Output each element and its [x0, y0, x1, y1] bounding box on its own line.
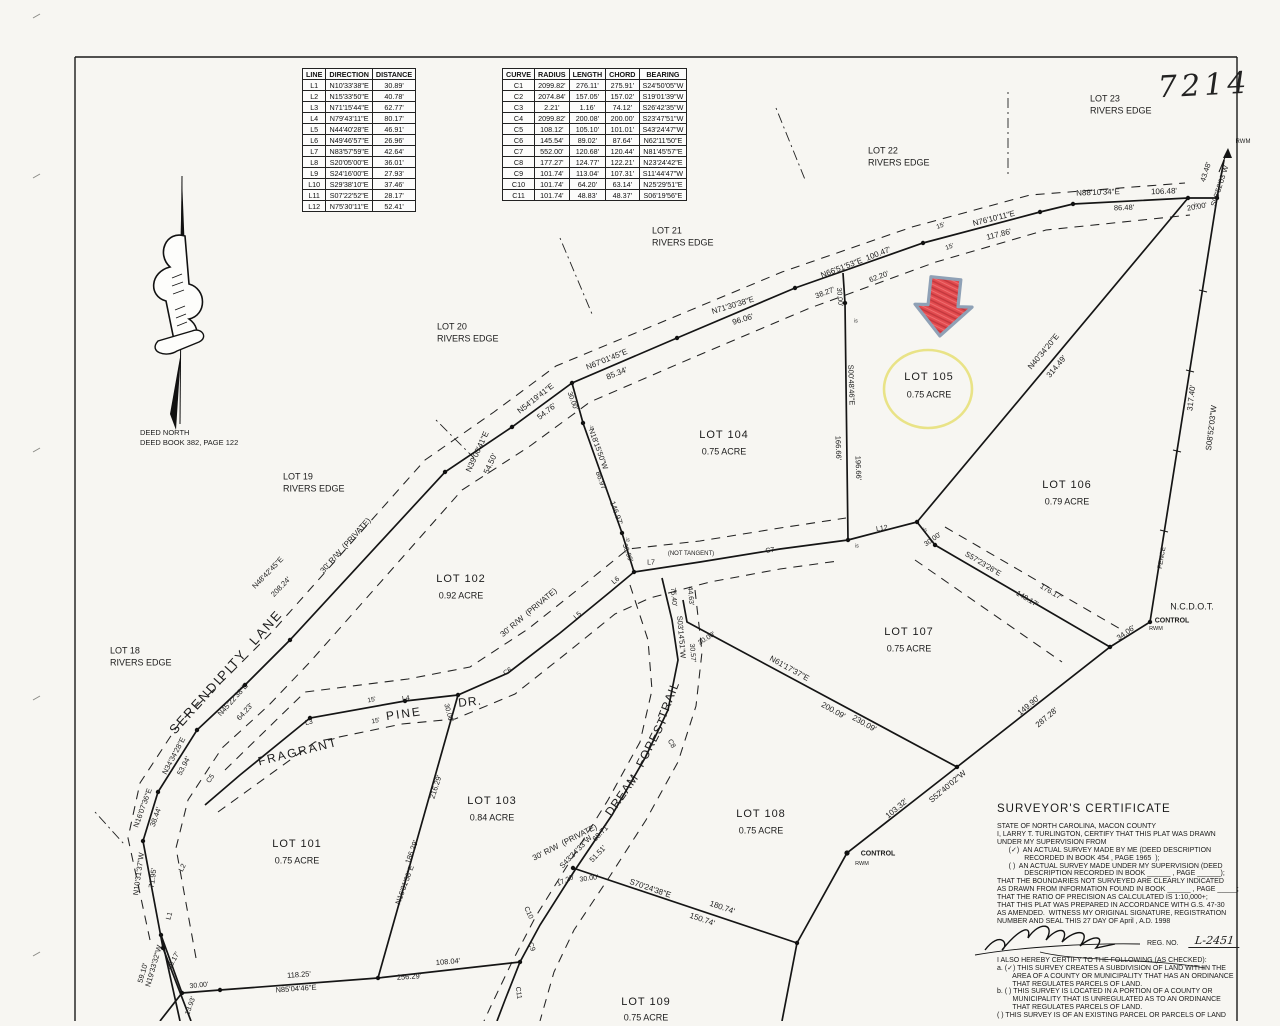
table-cell: N81'45'57"E	[639, 146, 687, 157]
table-cell: N71'15'44"E	[326, 102, 373, 113]
table-cell: 275.91'	[606, 80, 639, 91]
table-cell: S11'44'47"W	[639, 168, 687, 179]
dim-label: 118.25'	[287, 970, 311, 980]
certificate-line: b. ( ) THIS SURVEY IS LOCATED IN A PORTI…	[997, 988, 1280, 996]
table-cell: S20'05'00"E	[326, 157, 373, 168]
certificate-line: a. (✓) THIS SURVEY CREATES A SUBDIVISION…	[997, 965, 1280, 973]
line-table: LINEDIRECTIONDISTANCEL1N10'33'38"E30.89'…	[302, 68, 416, 212]
table-cell: 276.11'	[569, 80, 606, 91]
certificate-title: SURVEYOR'S CERTIFICATE	[997, 803, 1280, 815]
table-cell: L10	[303, 179, 326, 190]
table-cell: 89.02'	[569, 135, 606, 146]
lot-22-sub: RIVERS EDGE	[868, 158, 930, 167]
lot-23-label: LOT 23	[1090, 94, 1120, 103]
dim-label: 44.63'	[686, 586, 695, 605]
table-row: L12N75'30'11"E52.41'	[303, 201, 416, 212]
dim-label: 86.48'	[1114, 204, 1134, 213]
table-cell: 105.10'	[569, 124, 606, 135]
table-cell: 62.77'	[372, 102, 415, 113]
table-cell: 46.91'	[372, 124, 415, 135]
lot-105-acre: 0.75 ACRE	[907, 390, 952, 399]
table-row: L3N71'15'44"E62.77'	[303, 102, 416, 113]
table-cell: C9	[503, 168, 535, 179]
table-cell: N83'57'59"E	[326, 146, 373, 157]
certificate-line: THAT REGULATES PARCELS OF LAND.	[997, 1004, 1280, 1012]
stake-label: is	[626, 538, 630, 543]
lot-105-label: LOT 105	[904, 372, 954, 384]
ncdot-label: N.C.D.O.T.	[1170, 602, 1214, 611]
lot-108-acre: 0.75 ACRE	[739, 826, 784, 835]
table-header: RADIUS	[535, 69, 570, 80]
table-row: C32.21'1.16'74.12'S26'42'35"W	[503, 102, 687, 113]
table-row: L8S20'05'00"E36.01'	[303, 157, 416, 168]
dim-label: 30.00'	[835, 287, 844, 306]
table-cell: 157.02'	[606, 91, 639, 102]
table-cell: C8	[503, 157, 535, 168]
table-cell: 552.00'	[535, 146, 570, 157]
curve-table: CURVERADIUSLENGTHCHORDBEARINGC12099.82'2…	[502, 68, 687, 201]
table-cell: 2074.84'	[535, 91, 570, 102]
table-cell: 108.12'	[535, 124, 570, 135]
table-cell: 101.01'	[606, 124, 639, 135]
table-cell: S43'24'47"W	[639, 124, 687, 135]
table-cell: S26'42'35"W	[639, 102, 687, 113]
table-cell: 42.64'	[372, 146, 415, 157]
plat-map-canvas: 7214 LINEDIRECTIONDISTANCEL1N10'33'38"E3…	[0, 0, 1280, 1021]
table-cell: C2	[503, 91, 535, 102]
dim-label: 106.48'	[1151, 187, 1177, 196]
lot-19-sub: RIVERS EDGE	[283, 484, 345, 493]
stake-label: is	[1194, 203, 1198, 208]
table-cell: 28.17'	[372, 190, 415, 201]
table-cell: L3	[303, 102, 326, 113]
table-cell: 101.74'	[535, 190, 570, 201]
table-cell: 2.21'	[535, 102, 570, 113]
table-row: L5N44'40'28"E46.91'	[303, 124, 416, 135]
scan-edge-marks	[33, 14, 40, 956]
certificate-line: NUMBER AND SEAL THIS 27 DAY OF April , A…	[997, 918, 1280, 926]
table-header: BEARING	[639, 69, 687, 80]
lot-108-label: LOT 108	[736, 809, 786, 821]
table-cell: 177.27'	[535, 157, 570, 168]
table-cell: C3	[503, 102, 535, 113]
table-cell: N62'11'50"E	[639, 135, 687, 146]
deed-north-note: DEED NORTH	[140, 429, 189, 437]
table-cell: 48.37'	[606, 190, 639, 201]
table-row: C11101.74'48.83'48.37'S06'19'56"E	[503, 190, 687, 201]
stake-label: is	[923, 528, 927, 533]
stake-label: is	[854, 319, 858, 324]
lot-101-acre: 0.75 ACRE	[275, 856, 320, 865]
seg-label: L7	[647, 559, 655, 566]
lot-105-pointer-arrow	[912, 275, 975, 339]
dim-label: 75.40'	[669, 587, 678, 606]
certificate-checklist: I ALSO HEREBY CERTIFY TO THE FOLLOWING (…	[997, 957, 1280, 1020]
lot-109-label: LOT 109	[621, 997, 671, 1009]
deed-book-note: DEED BOOK 382, PAGE 122	[140, 439, 238, 447]
table-cell: 101.74'	[535, 168, 570, 179]
table-cell: 74.12'	[606, 102, 639, 113]
certificate-line: ( ) AN ACTUAL SURVEY MADE UNDER MY SUPER…	[997, 863, 1280, 871]
table-cell: S23'47'51"W	[639, 113, 687, 124]
table-cell: 145.54'	[535, 135, 570, 146]
table-cell: N79'43'11"E	[326, 113, 373, 124]
table-header: CURVE	[503, 69, 535, 80]
reg-no-value: L-2451	[1188, 934, 1240, 948]
stake-label: is	[590, 426, 594, 431]
certificate-line: DESCRIPTION RECORDED IN BOOK ______ , PA…	[997, 870, 1280, 878]
table-cell: 1.16'	[569, 102, 606, 113]
street-dr: DR.	[458, 695, 483, 710]
certificate-line: I, LARRY T. TURLINGTON, CERTIFY THAT THI…	[997, 831, 1280, 839]
table-row: L7N83'57'59"E42.64'	[303, 146, 416, 157]
table-cell: L2	[303, 91, 326, 102]
table-cell: 26.96'	[372, 135, 415, 146]
table-row: C12099.82'276.11'275.91'S24'50'05"W	[503, 80, 687, 91]
table-row: C5108.12'105.10'101.01'S43'24'47"W	[503, 124, 687, 135]
table-row: C8177.27'124.77'122.21'N23'24'42"E	[503, 157, 687, 168]
reg-no-label: REG. NO.	[1147, 940, 1179, 947]
table-header: DISTANCE	[372, 69, 415, 80]
table-cell: C10	[503, 179, 535, 190]
rwm-label: RWM	[855, 862, 869, 868]
surveyors-certificate: SURVEYOR'S CERTIFICATE STATE OF NORTH CA…	[997, 803, 1280, 1020]
table-cell: 120.68'	[569, 146, 606, 157]
certificate-line: AS AMENDED. WITNESS MY ORIGINAL SIGNATUR…	[997, 910, 1280, 918]
table-cell: N10'33'38"E	[326, 80, 373, 91]
table-cell: C4	[503, 113, 535, 124]
table-cell: N15'33'50"E	[326, 91, 373, 102]
table-cell: L11	[303, 190, 326, 201]
lot-21-sub: RIVERS EDGE	[652, 238, 714, 247]
table-header: CHORD	[606, 69, 639, 80]
bearing-label: N88'10'34"E	[1076, 188, 1120, 198]
dim-label: 196.66'	[854, 456, 863, 481]
sheet-number-handwritten: 7214	[1157, 66, 1251, 106]
table-cell: 122.21'	[606, 157, 639, 168]
lot-103-acre: 0.84 ACRE	[470, 813, 515, 822]
table-cell: 27.93'	[372, 168, 415, 179]
certificate-line: AREA OF A COUNTY OR MUNICIPALITY THAT HA…	[997, 973, 1280, 981]
table-cell: 2099.82'	[535, 80, 570, 91]
table-cell: L8	[303, 157, 326, 168]
table-cell: L6	[303, 135, 326, 146]
table-row: C42099.82'200.08'200.00'S23'47'51"W	[503, 113, 687, 124]
table-cell: 36.01'	[372, 157, 415, 168]
table-cell: 200.00'	[606, 113, 639, 124]
certificate-line: THAT THE RATIO OF PRECISION AS CALCULATE…	[997, 894, 1280, 902]
plat-scan-page: { "sheet": { "number": "7214" }, "line_t…	[0, 0, 1280, 1021]
table-cell: 37.46'	[372, 179, 415, 190]
lot-106-label: LOT 106	[1042, 480, 1092, 492]
table-cell: S07'22'52"E	[326, 190, 373, 201]
certificate-line: MUNICIPALITY THAT IS UNREGULATED AS TO A…	[997, 996, 1280, 1004]
certificate-line: (✓) AN ACTUAL SURVEY MADE BY ME (DEED DE…	[997, 847, 1280, 855]
table-cell: 107.31'	[606, 168, 639, 179]
lot-102-label: LOT 102	[436, 574, 486, 586]
table-cell: 64.20'	[569, 179, 606, 190]
table-header: LINE	[303, 69, 326, 80]
lot-109-acre: 0.75 ACRE	[624, 1013, 669, 1022]
table-row: L2N15'33'50"E40.78'	[303, 91, 416, 102]
table-cell: C6	[503, 135, 535, 146]
rwm-label: RWM	[1149, 627, 1163, 633]
table-cell: 48.83'	[569, 190, 606, 201]
certificate-line: ( ) THIS SURVEY IS OF AN EXISTING PARCEL…	[997, 1012, 1280, 1020]
table-row: L10S29'38'10"E37.46'	[303, 179, 416, 190]
table-cell: N49'46'57"E	[326, 135, 373, 146]
table-row: L1N10'33'38"E30.89'	[303, 80, 416, 91]
table-row: C10101.74'64.20'63.14'N25'29'51"E	[503, 179, 687, 190]
table-cell: 52.41'	[372, 201, 415, 212]
certificate-line: THAT REGULATES PARCELS OF LAND.	[997, 981, 1280, 989]
table-cell: C7	[503, 146, 535, 157]
certificate-line: AS DRAWN FROM INFORMATION FOUND IN BOOK …	[997, 886, 1280, 894]
table-cell: 80.17'	[372, 113, 415, 124]
certificate-line: THAT THE BOUNDARIES NOT SURVEYED ARE CLE…	[997, 878, 1280, 886]
certificate-body: STATE OF NORTH CAROLINA, MACON COUNTYI, …	[997, 823, 1280, 926]
table-cell: S19'01'39"W	[639, 91, 687, 102]
lot-104-label: LOT 104	[699, 430, 749, 442]
table-cell: N44'40'28"E	[326, 124, 373, 135]
table-cell: N23'24'42"E	[639, 157, 687, 168]
lot-23-sub: RIVERS EDGE	[1090, 106, 1152, 115]
table-cell: S29'38'10"E	[326, 179, 373, 190]
lot-107-acre: 0.75 ACRE	[887, 644, 932, 653]
table-row: C22074.84'157.05'157.02'S19'01'39"W	[503, 91, 687, 102]
lot-107-label: LOT 107	[884, 627, 934, 639]
table-cell: L9	[303, 168, 326, 179]
control-label: CONTROL	[1155, 617, 1190, 624]
table-row: L6N49'46'57"E26.96'	[303, 135, 416, 146]
table-cell: N25'29'51"E	[639, 179, 687, 190]
dim-label: 256.29'	[397, 972, 422, 982]
table-cell: S06'19'56"E	[639, 190, 687, 201]
table-cell: 101.74'	[535, 179, 570, 190]
seg-label: C7	[765, 547, 775, 555]
table-cell: C5	[503, 124, 535, 135]
table-header: LENGTH	[569, 69, 606, 80]
table-row: C6145.54'89.02'87.64'N62'11'50"E	[503, 135, 687, 146]
table-cell: S24'16'00"E	[326, 168, 373, 179]
lot-103-label: LOT 103	[467, 796, 517, 808]
table-header: DIRECTION	[326, 69, 373, 80]
certificate-line: I ALSO HEREBY CERTIFY TO THE FOLLOWING (…	[997, 957, 1280, 965]
lot-21-label: LOT 21	[652, 226, 682, 235]
lot-20-label: LOT 20	[437, 322, 467, 331]
table-cell: 87.64'	[606, 135, 639, 146]
seg-label: L4	[402, 695, 411, 703]
table-cell: L1	[303, 80, 326, 91]
table-cell: 200.08'	[569, 113, 606, 124]
certificate-line: UNDER MY SUPERVISION FROM	[997, 839, 1280, 847]
table-cell: 113.04'	[569, 168, 606, 179]
certificate-line: STATE OF NORTH CAROLINA, MACON COUNTY	[997, 823, 1280, 831]
lot-19-label: LOT 19	[283, 472, 313, 481]
table-cell: L12	[303, 201, 326, 212]
table-row: L9S24'16'00"E27.93'	[303, 168, 416, 179]
signature-row: REG. NO. L-2451	[997, 928, 1280, 954]
table-cell: 40.78'	[372, 91, 415, 102]
lot-22-label: LOT 22	[868, 146, 898, 155]
table-cell: N75'30'11"E	[326, 201, 373, 212]
lot-20-sub: RIVERS EDGE	[437, 334, 499, 343]
bearing-label: S00'48'46"E	[846, 365, 855, 406]
lot-102-acre: 0.92 ACRE	[439, 591, 484, 600]
table-row: L4N79'43'11"E80.17'	[303, 113, 416, 124]
certificate-line: THAT THIS PLAT WAS PREPARED IN ACCORDANC…	[997, 902, 1280, 910]
control-label: CONTROL	[861, 850, 896, 857]
table-cell: S24'50'05"W	[639, 80, 687, 91]
table-row: L11S07'22'52"E28.17'	[303, 190, 416, 201]
lot-18-label: LOT 18	[110, 646, 140, 655]
north-arrow-compass	[154, 176, 204, 430]
table-cell: C11	[503, 190, 535, 201]
certificate-line: RECORDED IN BOOK 454 , PAGE 1965 );	[997, 855, 1280, 863]
lot-18-sub: RIVERS EDGE	[110, 658, 172, 667]
lot-106-acre: 0.79 ACRE	[1045, 497, 1090, 506]
table-cell: L4	[303, 113, 326, 124]
note-label: (NOT TANGENT)	[668, 551, 714, 557]
rwm-label: RWM	[1236, 139, 1251, 145]
seg-label: C11	[514, 986, 523, 999]
dim-label: 166.66'	[834, 436, 843, 461]
table-cell: L7	[303, 146, 326, 157]
dim-label: 30.57'	[688, 643, 697, 662]
table-cell: 124.77'	[569, 157, 606, 168]
table-cell: 120.44'	[606, 146, 639, 157]
table-cell: L5	[303, 124, 326, 135]
table-cell: 2099.82'	[535, 113, 570, 124]
table-cell: 30.89'	[372, 80, 415, 91]
table-row: C9101.74'113.04'107.31'S11'44'47"W	[503, 168, 687, 179]
lot-101-label: LOT 101	[272, 839, 322, 851]
lot-104-acre: 0.75 ACRE	[702, 447, 747, 456]
table-cell: 157.05'	[569, 91, 606, 102]
table-cell: C1	[503, 80, 535, 91]
table-cell: 63.14'	[606, 179, 639, 190]
stake-label: is	[855, 544, 859, 549]
table-row: C7552.00'120.68'120.44'N81'45'57"E	[503, 146, 687, 157]
